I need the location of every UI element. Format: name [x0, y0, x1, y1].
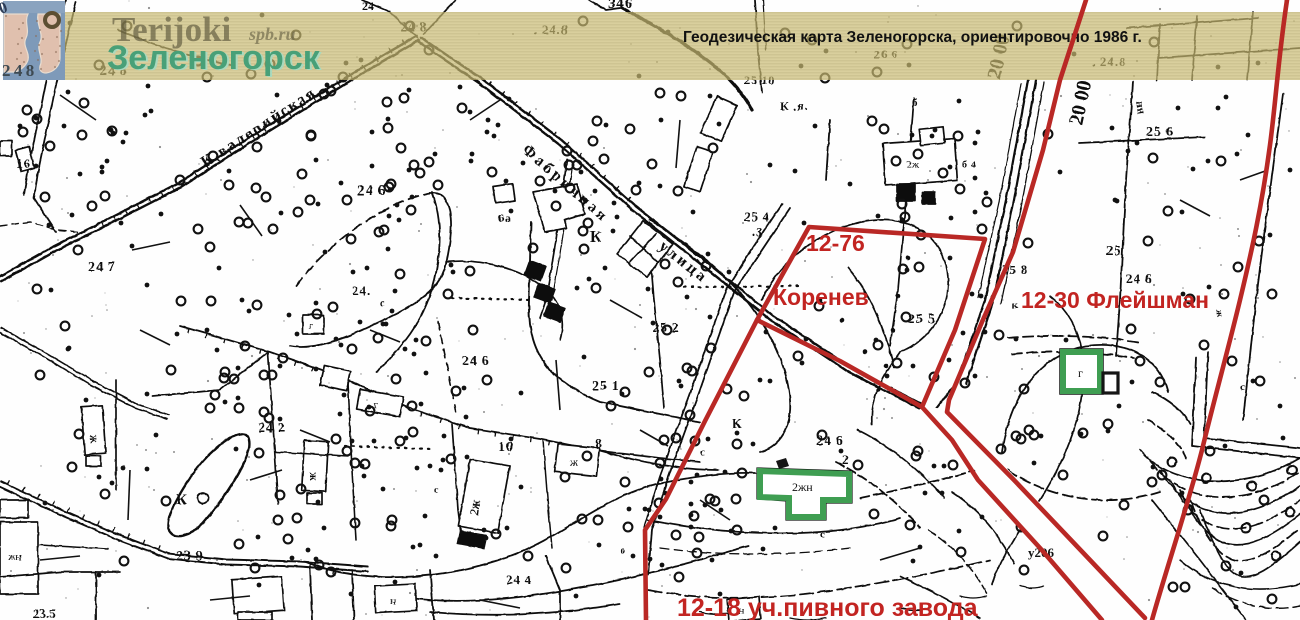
svg-text:24.: 24.: [352, 283, 371, 298]
svg-text:25: 25: [1106, 244, 1122, 259]
svg-text:12-76: 12-76: [806, 230, 865, 256]
svg-text:с: с: [1240, 381, 1246, 393]
svg-text:2жн: 2жн: [792, 480, 813, 494]
svg-text:с: с: [380, 298, 385, 309]
svg-text:б: б: [912, 97, 919, 109]
svg-text:жн: жн: [7, 551, 22, 563]
svg-text:12-18 уч.пивного завода: 12-18 уч.пивного завода: [677, 594, 979, 620]
svg-text:16: 16: [16, 156, 31, 171]
svg-text:24 6: 24 6: [462, 354, 490, 369]
svg-text:25 6: 25 6: [1146, 125, 1174, 140]
svg-text:346: 346: [608, 0, 634, 12]
svg-text:К: К: [590, 229, 603, 246]
svg-text:24 4: 24 4: [506, 572, 532, 587]
svg-text:ж: ж: [569, 457, 578, 469]
svg-text:24 2: 24 2: [258, 421, 286, 436]
svg-text:2ж: 2ж: [906, 159, 920, 171]
svg-text:25 5: 25 5: [908, 312, 936, 327]
svg-text:г: г: [309, 321, 313, 332]
svg-text:8: 8: [595, 437, 603, 452]
svg-text:23 9: 23 9: [176, 549, 204, 564]
svg-text:25 1: 25 1: [592, 379, 620, 394]
svg-text:г: г: [1078, 366, 1083, 380]
svg-text:К: К: [732, 416, 742, 431]
svg-text:24 6: 24 6: [1126, 271, 1152, 286]
svg-text:б 4: б 4: [962, 160, 977, 171]
svg-text:с: с: [820, 529, 826, 541]
svg-text:12-30 Флейшман: 12-30 Флейшман: [1021, 287, 1209, 313]
svg-text:24 6: 24 6: [816, 434, 844, 449]
svg-text:н: н: [390, 595, 396, 607]
svg-text:23.5: 23.5: [33, 606, 56, 620]
svg-text:2: 2: [842, 452, 850, 467]
svg-text:24 7: 24 7: [88, 260, 116, 275]
svg-text:с: с: [700, 446, 706, 458]
svg-text:Коренев: Коренев: [773, 284, 869, 310]
svg-text:К .я.: К .я.: [780, 99, 809, 113]
svg-text:25 4: 25 4: [744, 209, 770, 224]
svg-text:с: с: [434, 485, 439, 496]
svg-text:10: 10: [498, 440, 514, 455]
svg-text:24: 24: [362, 0, 374, 13]
svg-text:.3: .3: [752, 225, 763, 239]
svg-text:Зеленогорск: Зеленогорск: [107, 39, 321, 77]
svg-text:2 4 8: 2 4 8: [2, 61, 34, 80]
svg-text:2ж: 2ж: [466, 498, 483, 516]
svg-text:24 6: 24 6: [357, 183, 387, 199]
svg-text:К: К: [176, 492, 187, 508]
svg-text:ж: ж: [307, 472, 321, 481]
svg-text:к: к: [1012, 299, 1019, 311]
svg-text:о: о: [620, 546, 626, 557]
svg-text:ж: ж: [87, 434, 102, 444]
